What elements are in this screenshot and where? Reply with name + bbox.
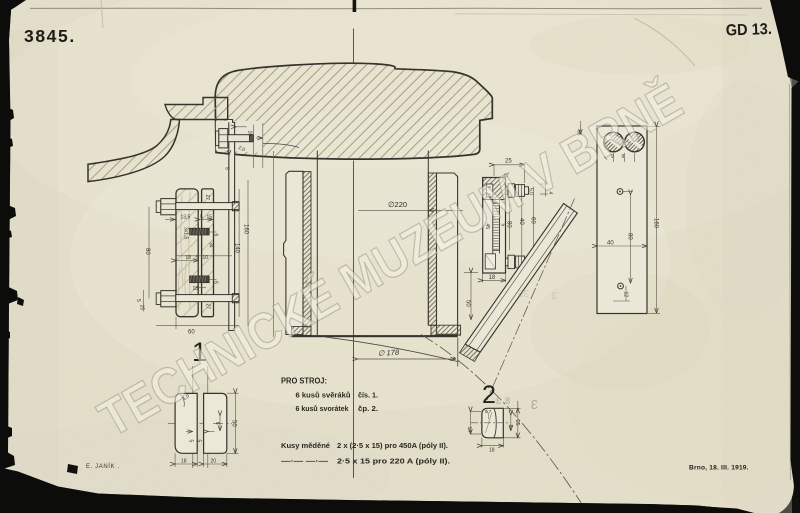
svg-text:50: 50 [465, 300, 471, 307]
svg-text:5: 5 [187, 440, 193, 443]
svg-text:15: 15 [139, 305, 145, 311]
svg-text:6: 6 [213, 281, 219, 284]
svg-text:2: 2 [482, 381, 496, 409]
svg-text:6 kusů svěráků: 6 kusů svěráků [296, 391, 351, 400]
svg-text:27: 27 [204, 195, 210, 201]
svg-text:8: 8 [507, 425, 513, 428]
svg-text:18: 18 [181, 459, 187, 465]
svg-text:10: 10 [203, 255, 209, 261]
svg-text:3x1,5: 3x1,5 [182, 227, 188, 239]
svg-text:3: 3 [551, 291, 557, 302]
svg-text:15: 15 [207, 215, 213, 221]
svg-text:18: 18 [193, 286, 199, 292]
svg-text:20: 20 [211, 459, 217, 465]
svg-text:čp. 2.: čp. 2. [358, 404, 378, 413]
svg-text:E. JANÍK .: E. JANÍK . [86, 463, 120, 470]
svg-text:5: 5 [196, 255, 199, 261]
svg-text:8: 8 [505, 396, 510, 406]
svg-text:—·— —·—: —·— —·— [281, 457, 329, 466]
svg-text:GD 13.: GD 13. [726, 21, 773, 40]
svg-text:18: 18 [186, 255, 192, 261]
svg-text:Kusy měděné: Kusy měděné [281, 441, 330, 450]
svg-text:5: 5 [224, 167, 230, 170]
svg-text:čís. 1.: čís. 1. [358, 391, 378, 400]
svg-text:5: 5 [200, 215, 203, 221]
svg-text:27: 27 [205, 304, 211, 310]
svg-text:60: 60 [188, 330, 195, 336]
svg-text:∅220: ∅220 [388, 200, 407, 209]
svg-text:35: 35 [517, 289, 529, 300]
svg-text:12: 12 [622, 292, 628, 298]
svg-text:60: 60 [530, 217, 536, 224]
svg-text:18: 18 [489, 275, 496, 281]
svg-text:140: 140 [234, 243, 240, 254]
svg-text:14: 14 [466, 427, 472, 433]
svg-text:34: 34 [208, 242, 214, 248]
svg-text:40: 40 [607, 240, 614, 246]
svg-text:6: 6 [213, 234, 219, 237]
svg-text:50: 50 [231, 420, 237, 427]
svg-text:2 x (2·5 x 15) pro 450A (p: 2 x (2·5 x 15) pro 450A (póly II). [337, 441, 448, 450]
svg-text:3: 3 [531, 397, 538, 412]
svg-text:5: 5 [135, 299, 141, 302]
svg-text:80: 80 [627, 233, 633, 240]
svg-text:6,7: 6,7 [485, 409, 492, 414]
svg-text:Brno, 18. III. 1919.: Brno, 18. III. 1919. [689, 465, 749, 472]
svg-text:160: 160 [243, 224, 249, 235]
svg-text:13,5: 13,5 [181, 215, 191, 221]
svg-text:3: 3 [496, 396, 501, 406]
svg-text:10: 10 [247, 131, 253, 137]
svg-text:160: 160 [653, 218, 659, 229]
svg-text:∅ 178: ∅ 178 [378, 348, 400, 358]
svg-text:5: 5 [196, 440, 202, 443]
svg-text:PRO STROJ:: PRO STROJ: [281, 377, 327, 386]
svg-text:6: 6 [214, 422, 220, 425]
svg-text:80: 80 [144, 248, 150, 255]
svg-text:6 kusů svorátek: 6 kusů svorátek [296, 404, 350, 413]
svg-text:18: 18 [489, 448, 495, 454]
svg-text:3845.: 3845. [24, 26, 76, 46]
svg-text:2·5 x 15 pro 220 A (póly: 2·5 x 15 pro 220 A (póly II). [337, 457, 450, 466]
svg-text:25: 25 [514, 420, 520, 426]
